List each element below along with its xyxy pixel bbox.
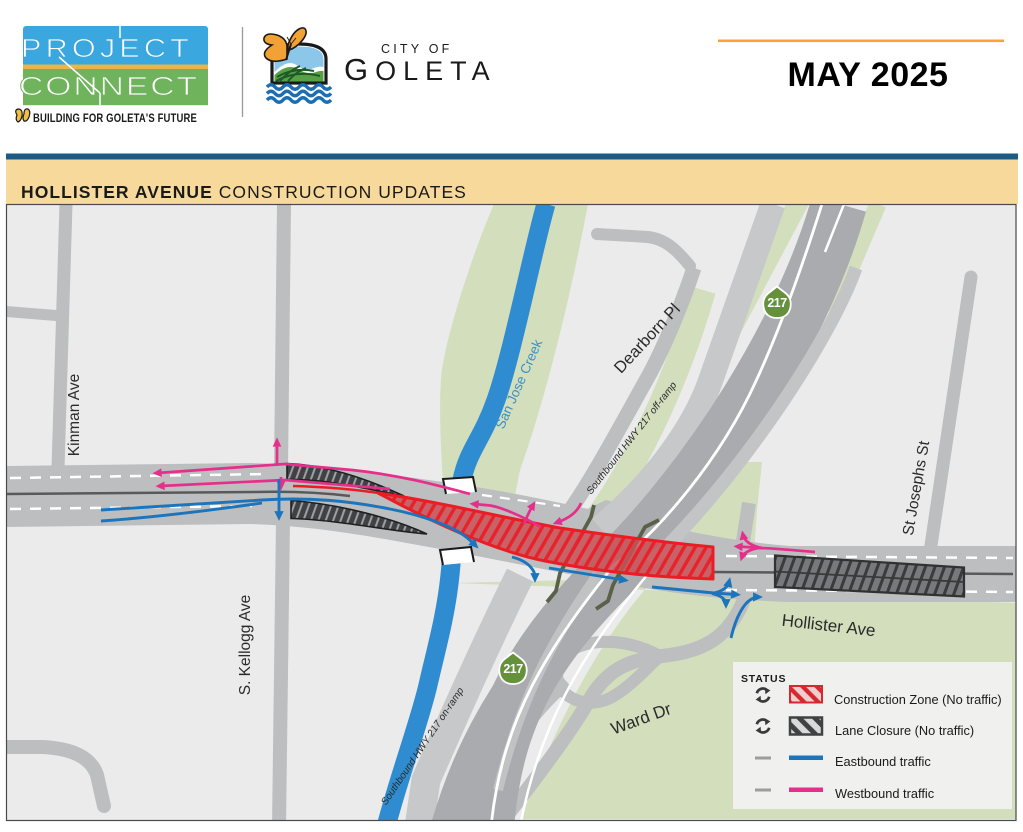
svg-text:HOLLISTER AVENUE CONSTRUCTION: HOLLISTER AVENUE CONSTRUCTION UPDATES xyxy=(21,182,467,202)
svg-text:Construction Zone (No traffic): Construction Zone (No traffic) xyxy=(834,692,1002,707)
svg-text:Kinman Ave: Kinman Ave xyxy=(66,374,83,456)
svg-text:BUILDING FOR GOLETA'S FUTURE: BUILDING FOR GOLETA'S FUTURE xyxy=(33,113,197,125)
svg-text:217: 217 xyxy=(503,662,523,676)
svg-text:GOLETA: GOLETA xyxy=(344,52,497,87)
svg-text:S. Kellogg Ave: S. Kellogg Ave xyxy=(237,595,254,696)
svg-text:Eastbound traffic: Eastbound traffic xyxy=(835,754,931,769)
svg-text:Lane Closure (No traffic): Lane Closure (No traffic) xyxy=(835,723,974,738)
svg-text:CONNECT: CONNECT xyxy=(19,71,199,101)
svg-text:STATUS: STATUS xyxy=(741,673,786,685)
svg-text:PROJECT: PROJECT xyxy=(21,33,193,63)
svg-text:CITY OF: CITY OF xyxy=(381,42,452,56)
svg-text:MAY 2025: MAY 2025 xyxy=(788,56,949,94)
svg-text:217: 217 xyxy=(767,296,787,310)
svg-text:Westbound traffic: Westbound traffic xyxy=(835,786,935,801)
